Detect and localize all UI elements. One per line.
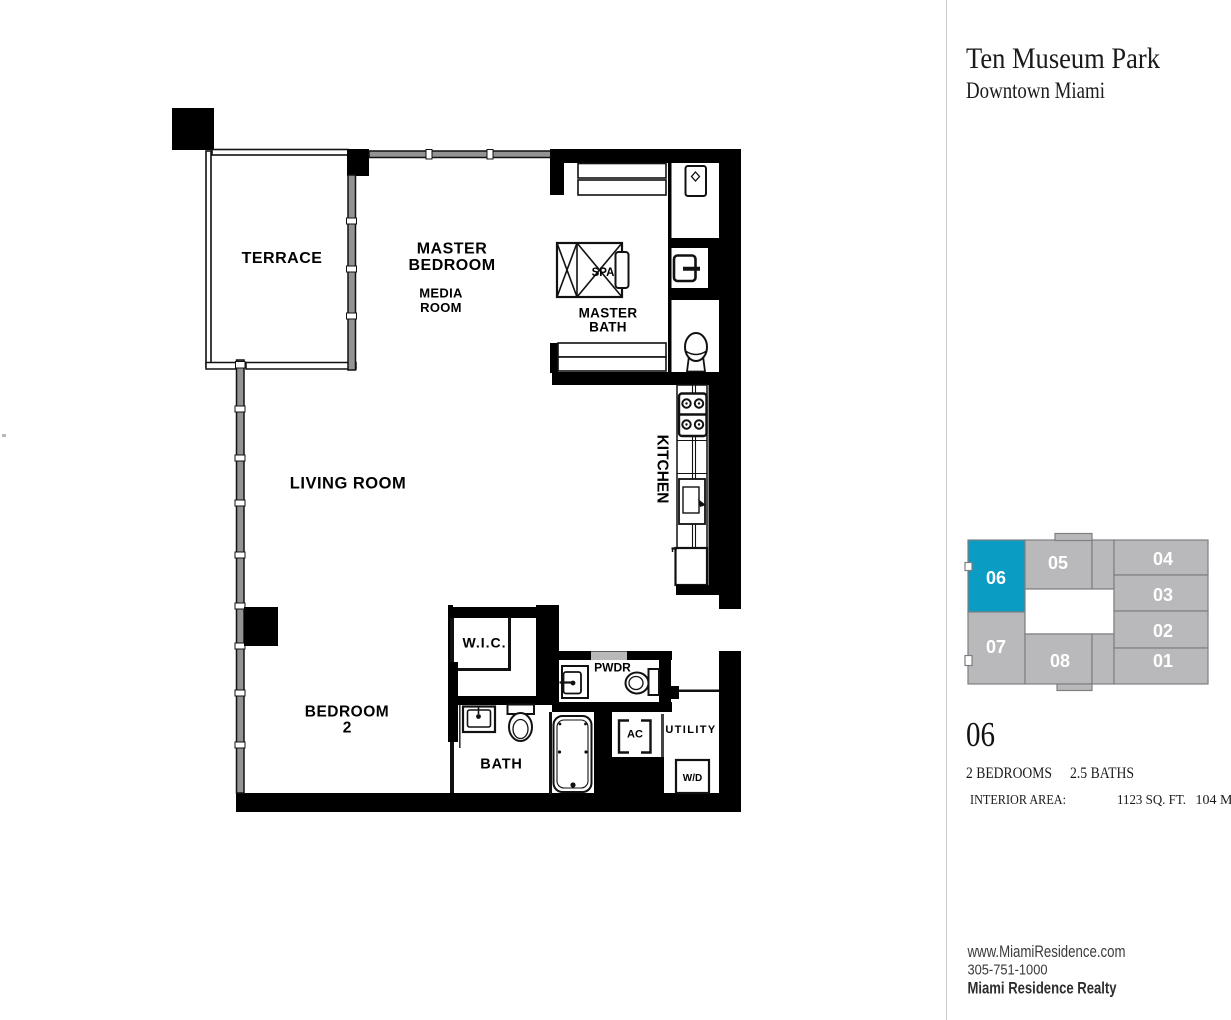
svg-text:305-751-1000: 305-751-1000	[968, 962, 1048, 979]
svg-text:LIVING ROOM: LIVING ROOM	[290, 475, 406, 493]
svg-text:MASTER: MASTER	[579, 306, 638, 321]
svg-text:UTILITY: UTILITY	[665, 724, 716, 736]
svg-text:BATH: BATH	[589, 320, 627, 335]
svg-text:104 M2: 104 M2	[1196, 792, 1231, 808]
svg-text:MASTER: MASTER	[417, 241, 488, 258]
svg-text:06: 06	[986, 568, 1006, 588]
svg-text:www.MiamiResidence.com: www.MiamiResidence.com	[967, 943, 1126, 961]
svg-text:MEDIA: MEDIA	[419, 286, 463, 301]
svg-text:2.5 BATHS: 2.5 BATHS	[1070, 765, 1134, 782]
svg-text:2: 2	[343, 720, 352, 737]
svg-text:03: 03	[1153, 585, 1173, 605]
svg-text:06: 06	[966, 715, 995, 754]
svg-text:08: 08	[1050, 651, 1070, 671]
svg-text:INTERIOR AREA:: INTERIOR AREA:	[970, 793, 1066, 808]
svg-text:W.I.C.: W.I.C.	[462, 635, 506, 651]
svg-text:PWDR: PWDR	[594, 661, 631, 675]
svg-text:AC: AC	[627, 729, 643, 741]
svg-text:07: 07	[986, 637, 1006, 657]
svg-text:Ten Museum Park: Ten Museum Park	[966, 42, 1160, 75]
svg-text:2 BEDROOMS: 2 BEDROOMS	[966, 765, 1052, 782]
svg-text:KITCHEN: KITCHEN	[654, 435, 671, 504]
svg-text:BEDROOM: BEDROOM	[305, 704, 389, 721]
svg-text:01: 01	[1153, 651, 1173, 671]
svg-text:BEDROOM: BEDROOM	[408, 257, 495, 274]
svg-text:SPA: SPA	[592, 267, 615, 279]
svg-text:BATH: BATH	[480, 757, 522, 773]
svg-text:ROOM: ROOM	[420, 300, 462, 315]
svg-text:1123 SQ. FT.: 1123 SQ. FT.	[1117, 793, 1186, 808]
svg-text:Miami Residence Realty: Miami Residence Realty	[968, 980, 1117, 998]
svg-text:Downtown Miami: Downtown Miami	[966, 78, 1105, 103]
svg-text:TERRACE: TERRACE	[242, 250, 323, 267]
svg-text:04: 04	[1153, 549, 1173, 569]
svg-text:02: 02	[1153, 621, 1173, 641]
svg-text:05: 05	[1048, 553, 1068, 573]
svg-text:W/D: W/D	[683, 773, 702, 784]
